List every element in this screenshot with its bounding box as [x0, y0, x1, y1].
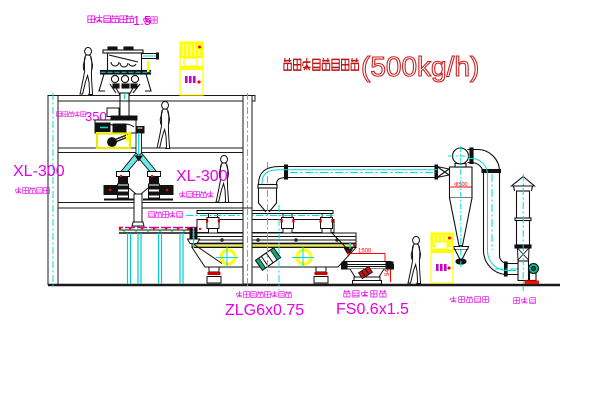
svg-text:FS0.6x1.5: FS0.6x1.5: [336, 301, 409, 318]
svg-text:XL-300: XL-300: [13, 163, 65, 180]
svg-text:(500kg/h): (500kg/h): [361, 51, 479, 82]
svg-text:ZLG6x0.75: ZLG6x0.75: [225, 302, 304, 319]
svg-text:1.5: 1.5: [133, 13, 151, 28]
svg-text:1500: 1500: [358, 249, 372, 255]
svg-text:XL-300: XL-300: [176, 168, 228, 185]
